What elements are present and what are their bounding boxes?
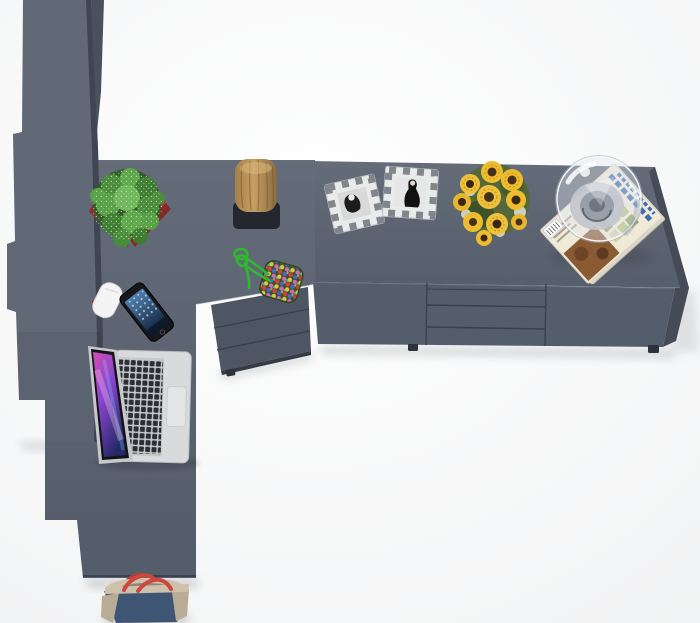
cactus-spines — [92, 170, 162, 240]
sunflower — [477, 185, 501, 209]
photo-frame-left — [324, 174, 385, 234]
sunflower — [476, 230, 492, 246]
render-stage — [0, 0, 700, 623]
sunflower — [486, 213, 508, 235]
stump-top-highlight — [240, 162, 272, 174]
sunflower — [460, 174, 480, 194]
sideboard-foot-right — [648, 345, 659, 353]
sideboard-front — [313, 282, 675, 347]
sunflower — [506, 190, 526, 210]
sunflower — [511, 214, 527, 230]
wood-stump-decor — [233, 159, 280, 229]
photo-frame-right — [382, 166, 438, 220]
trackpad[interactable] — [166, 386, 186, 426]
sunflower — [453, 193, 471, 211]
laptop — [88, 346, 200, 470]
sunflower — [481, 161, 503, 183]
sunflower — [501, 169, 523, 191]
sunflower — [463, 212, 483, 232]
left-column-front — [77, 520, 196, 578]
sideboard-foot-left — [408, 344, 418, 351]
glass-dome — [556, 156, 643, 243]
glass-spot — [580, 167, 590, 177]
scene-svg — [0, 0, 700, 623]
